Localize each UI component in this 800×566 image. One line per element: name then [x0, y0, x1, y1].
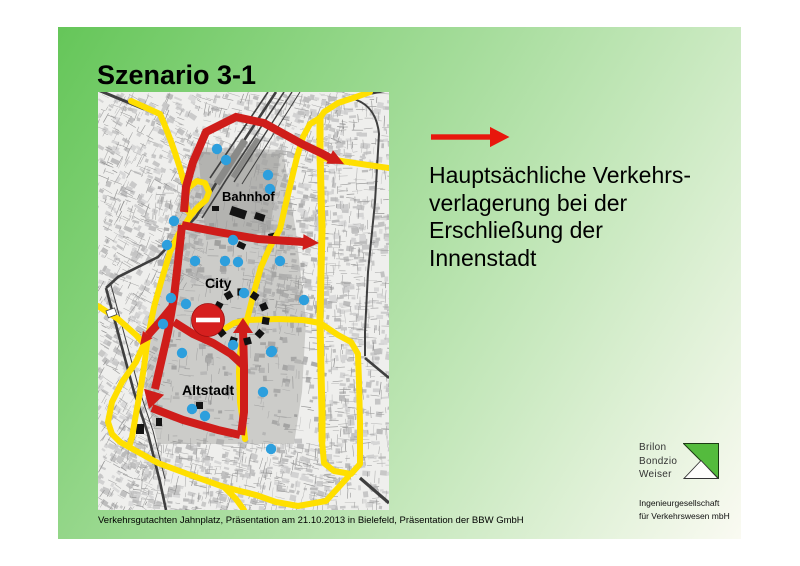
svg-text:City: City [205, 275, 232, 291]
svg-text:Altstadt: Altstadt [182, 382, 234, 398]
svg-text:Bahnhof: Bahnhof [222, 189, 275, 204]
